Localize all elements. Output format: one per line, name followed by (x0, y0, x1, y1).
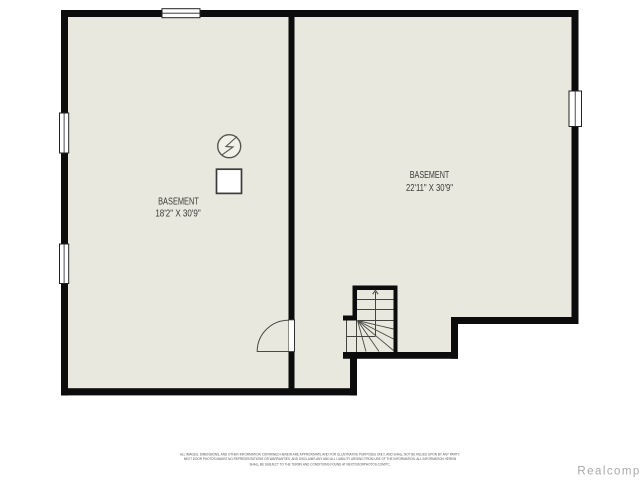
svg-text:22'11" X 30'9": 22'11" X 30'9" (406, 182, 453, 193)
svg-text:BASEMENT: BASEMENT (410, 169, 450, 180)
svg-text:NEXT DOOR PHOTOS MAKES NO REPR: NEXT DOOR PHOTOS MAKES NO REPRESENTATION… (184, 457, 457, 461)
svg-text:18'2" X 30'9": 18'2" X 30'9" (155, 208, 200, 219)
svg-text:BASEMENT: BASEMENT (158, 195, 199, 206)
svg-text:Realcomp: Realcomp (577, 465, 640, 477)
svg-text:SHALL BE SUBJECT TO THE TERMS: SHALL BE SUBJECT TO THE TERMS AND CONDIT… (249, 462, 390, 466)
